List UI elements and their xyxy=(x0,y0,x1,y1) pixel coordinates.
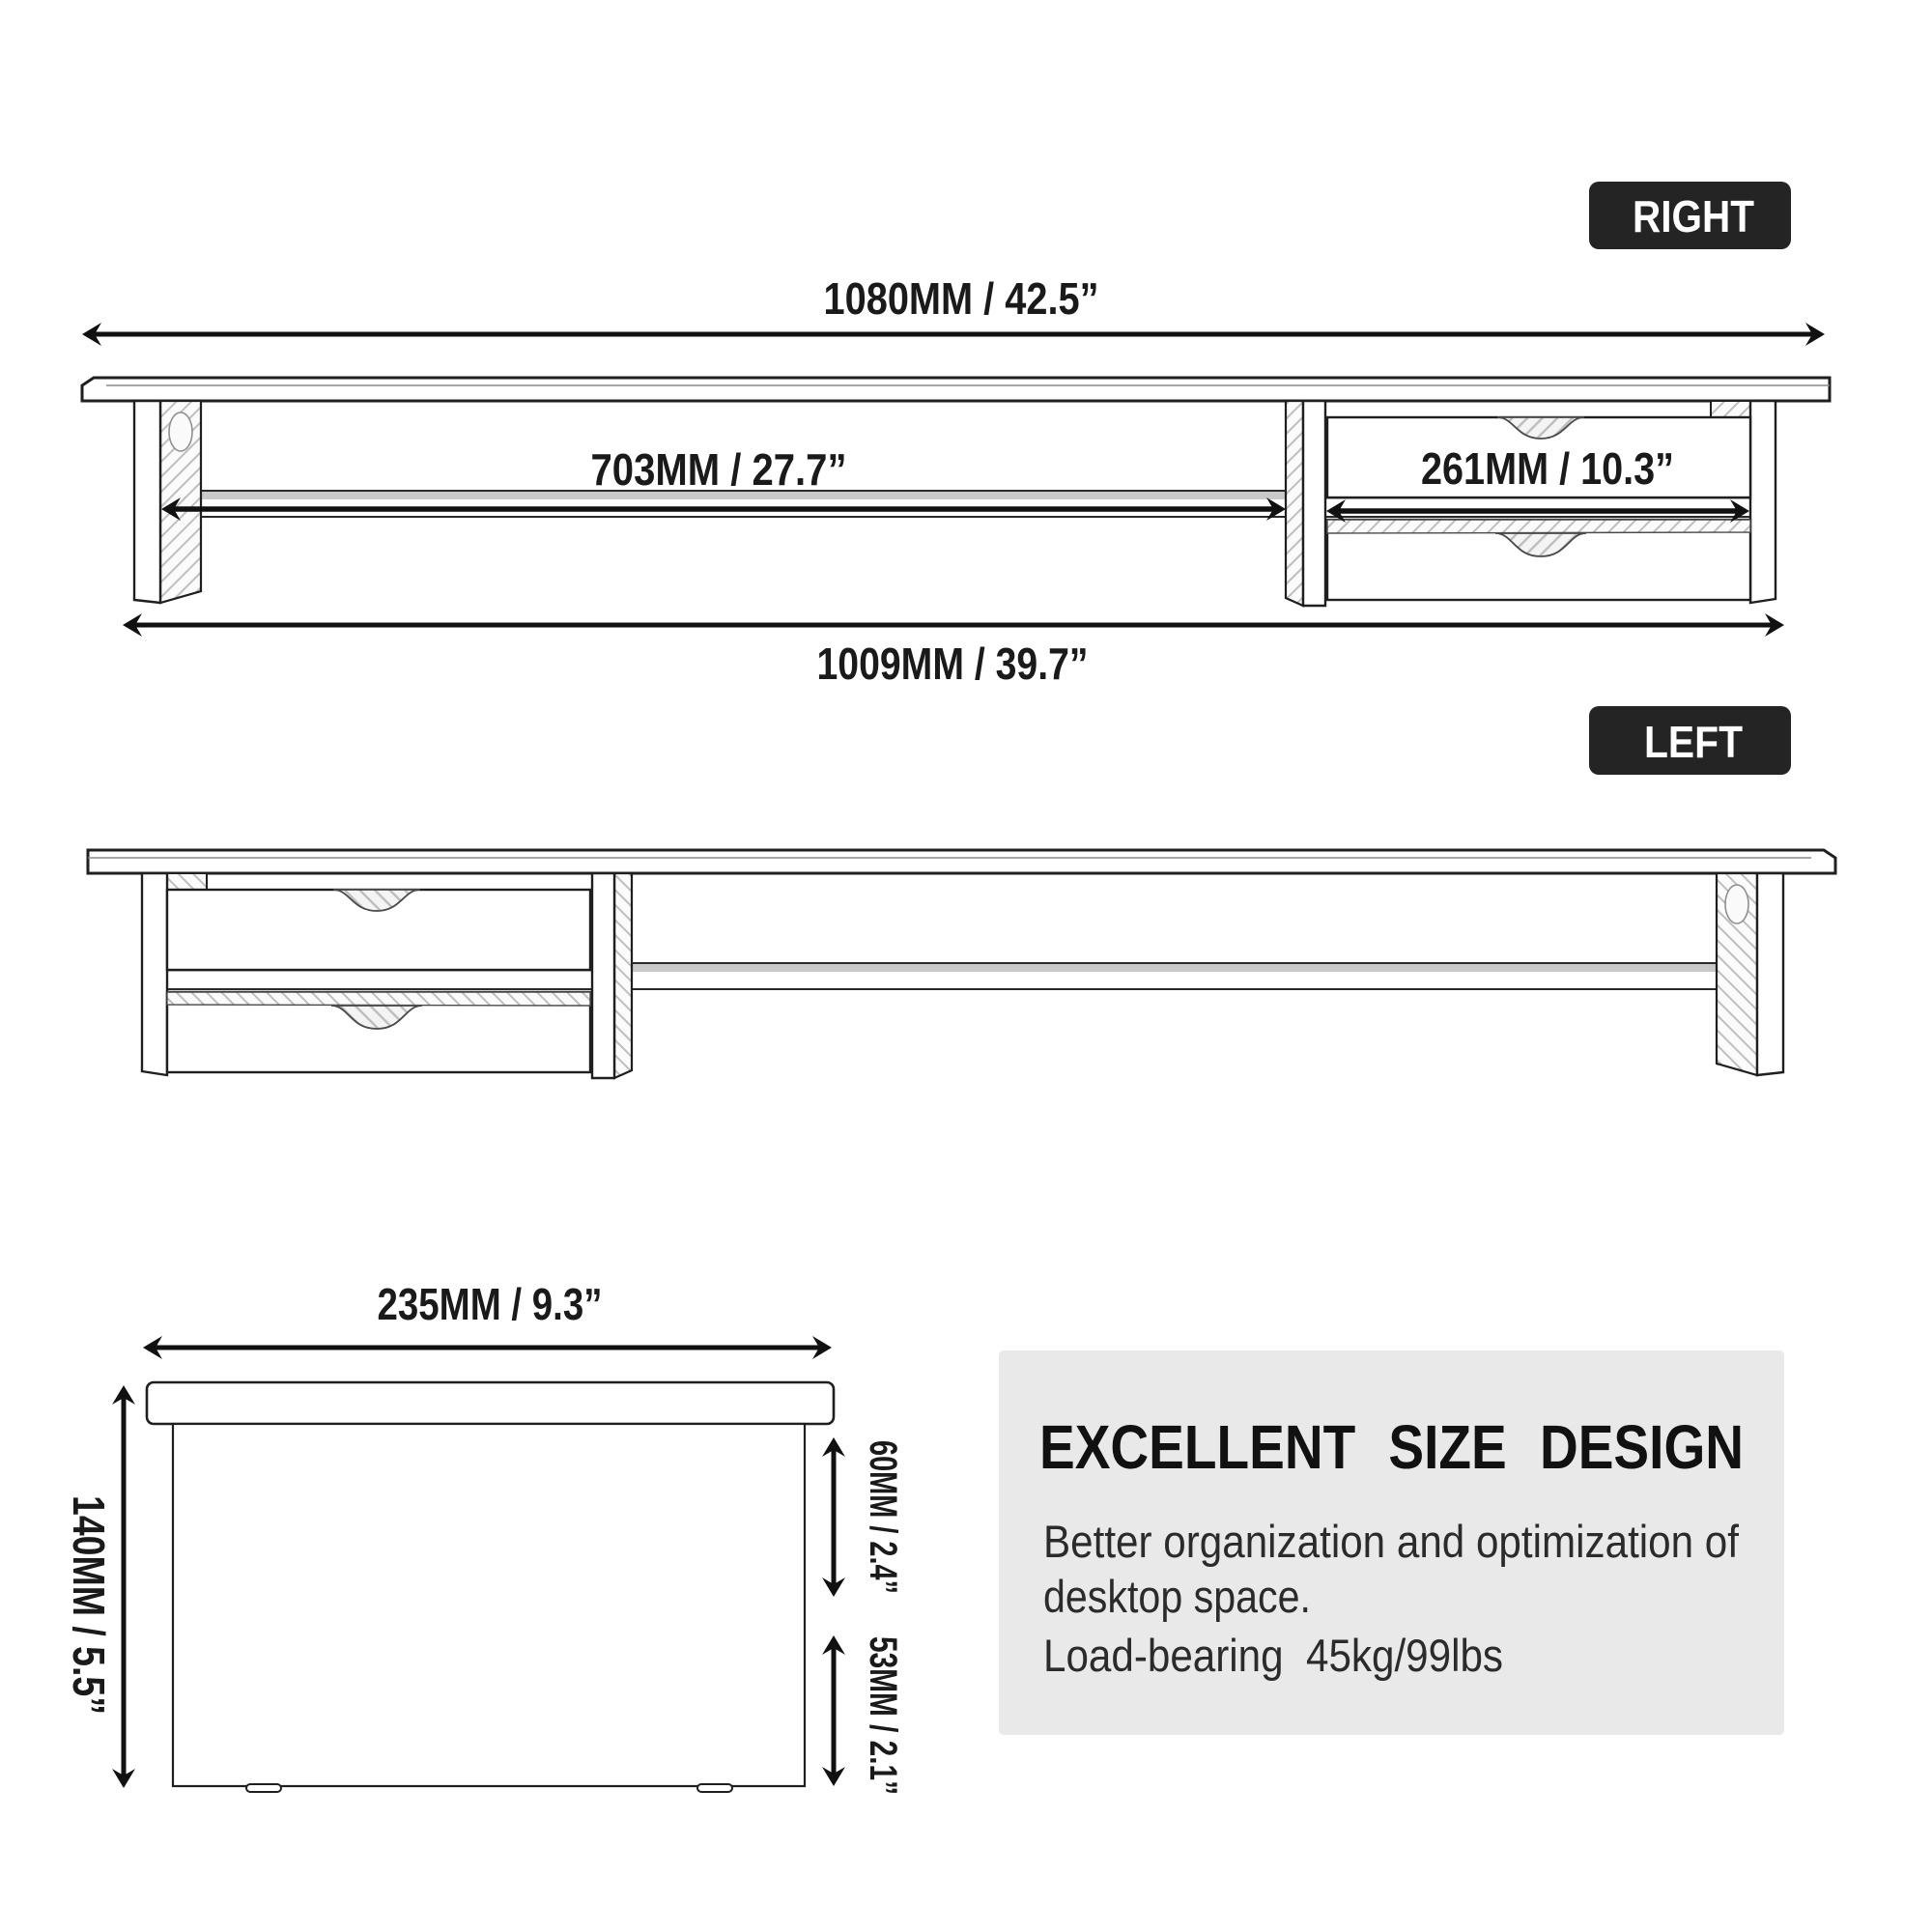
svg-text:703MM / 27.7”: 703MM / 27.7” xyxy=(591,444,847,495)
svg-text:261MM / 10.3”: 261MM / 10.3” xyxy=(1421,443,1674,494)
svg-text:1080MM / 42.5”: 1080MM / 42.5” xyxy=(824,273,1099,324)
svg-text:Load-bearing 45kg/99lbs: Load-bearing 45kg/99lbs xyxy=(1043,1630,1503,1681)
svg-text:1009MM / 39.7”: 1009MM / 39.7” xyxy=(817,639,1089,689)
svg-text:desktop space.: desktop space. xyxy=(1043,1571,1311,1622)
svg-text:Better organization and optimi: Better organization and optimization of xyxy=(1043,1516,1740,1567)
svg-text:LEFT: LEFT xyxy=(1644,717,1743,767)
svg-text:EXCELLENT SIZE DESIGN: EXCELLENT SIZE DESIGN xyxy=(1039,1412,1744,1482)
svg-text:53MM / 2.1”: 53MM / 2.1” xyxy=(862,1636,904,1795)
svg-text:140MM / 5.5”: 140MM / 5.5” xyxy=(64,1495,114,1715)
svg-text:235MM / 9.3”: 235MM / 9.3” xyxy=(378,1279,603,1329)
svg-text:RIGHT: RIGHT xyxy=(1633,191,1754,241)
svg-text:60MM / 2.4”: 60MM / 2.4” xyxy=(862,1440,904,1594)
